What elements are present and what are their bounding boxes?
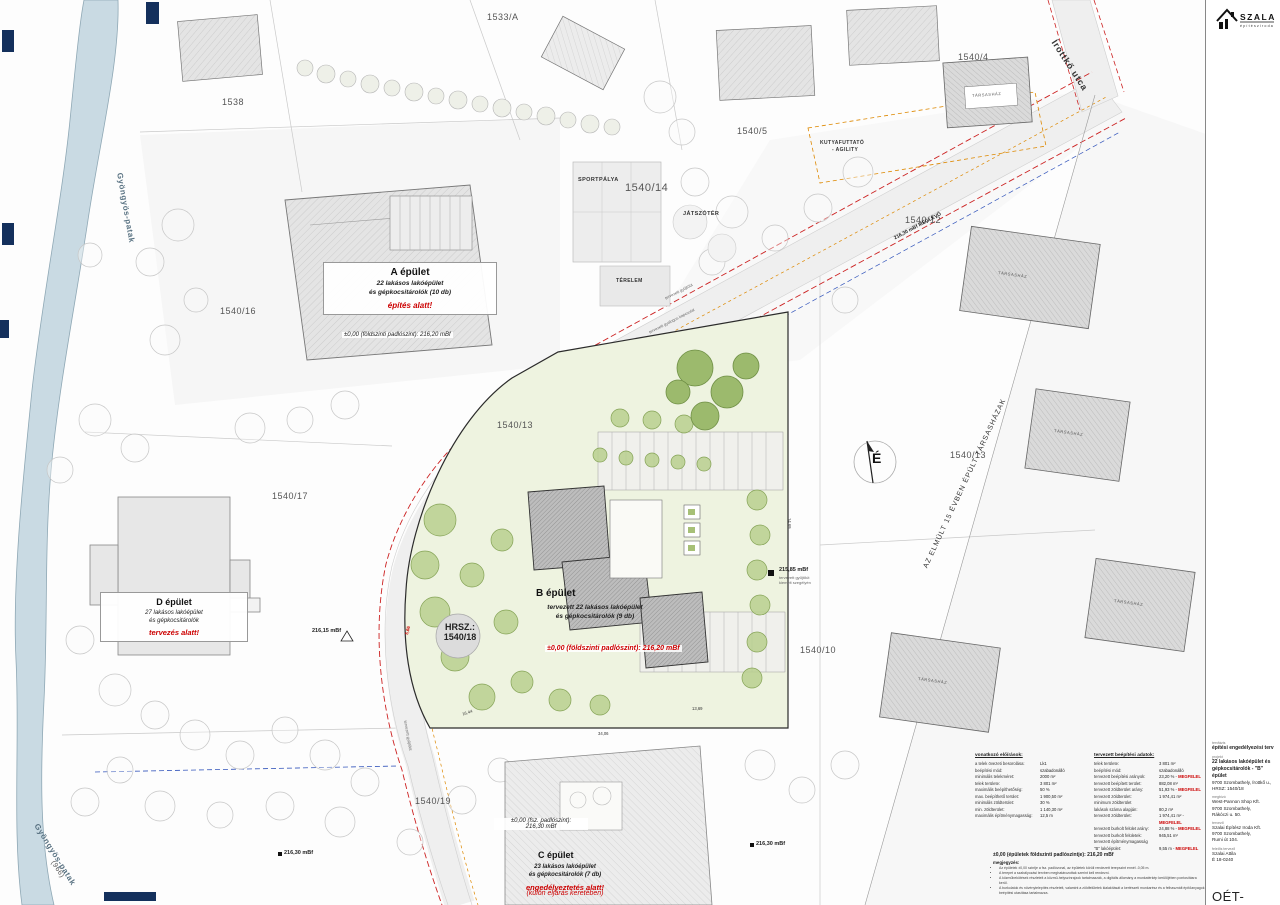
building-a-label: A épület 22 lakásos lakóépület és gépkoc…	[323, 262, 497, 315]
plot-label-1540-14: 1540/14	[625, 182, 668, 194]
svg-text:SZALAI: SZALAI	[1240, 12, 1276, 22]
dogrun-label-1: KUTYAFUTTATÓ	[820, 140, 864, 146]
plot-label-1533a: 1533/A	[487, 12, 519, 22]
ground-floor-level-note: ±0,00 (épületek földszinti padlószintje)…	[993, 852, 1205, 858]
elevation-21630-east: 216,30 mBf	[756, 841, 785, 847]
dim-34-06: 34,06	[598, 731, 608, 736]
zoning-required-column: vonatkozó előírások: a telek övezeti bes…	[975, 753, 1084, 852]
plot-label-1540-13-west: 1540/13	[497, 420, 533, 430]
sport-field-label: SPORTPÁLYA	[578, 177, 619, 183]
building-a-status: építés alatt!	[326, 301, 494, 310]
plot-label-1540-16: 1540/16	[220, 306, 256, 316]
plot-label-1538: 1538	[222, 97, 244, 107]
dim-13-69: 13,69	[692, 706, 702, 711]
hrsz-label: HRSZ.: 1540/18	[430, 622, 490, 642]
playground-label: JÁTSZÓTÉR	[683, 211, 719, 217]
building-c-title: C épület	[538, 850, 574, 860]
terelem-label: TÉRELEM	[616, 278, 643, 284]
plot-label-1540-10: 1540/10	[800, 645, 836, 655]
building-b-title: B épület	[536, 588, 575, 599]
elevation-21585: 215,85 mBf	[779, 567, 808, 573]
building-b-level: ±0,00 (földszinti padlószint): 216,20 mB…	[545, 645, 682, 652]
building-d-title: D épület	[103, 597, 245, 607]
building-d-status: tervezés alatt!	[103, 628, 245, 637]
plot-label-1540-5: 1540/5	[737, 126, 768, 136]
svg-text:építésziroda: építésziroda	[1240, 24, 1274, 28]
site-plan-sheet: 1533/A 1538 1540/4 1540/5 1540/12 1540/1…	[0, 0, 1280, 905]
plot-label-1540-19: 1540/19	[415, 796, 451, 806]
house-logo-icon: SZALAI építésziroda	[1214, 5, 1276, 39]
sheet-number: OÉT-04.04	[1212, 889, 1278, 905]
zoning-table: vonatkozó előírások: a telek övezeti bes…	[975, 753, 1203, 852]
firm-logo: SZALAI építésziroda	[1214, 5, 1276, 44]
building-c-level: ±0,00 (fsz. padlószint): 216,30 mBf	[494, 818, 588, 830]
elevation-21630-west: 216,30 mBf	[284, 850, 313, 856]
building-a-level: ±0,00 (földszinti padlószint): 216,20 mB…	[342, 332, 453, 338]
elevation-21615: 216,15 mBf	[312, 628, 341, 634]
zoning-planned-column: tervezett beépítési adatok: telek terüle…	[1094, 753, 1203, 852]
notes-block: ±0,00 (épületek földszinti padlószintje)…	[993, 852, 1205, 896]
dogrun-label-2: - AGILITY	[832, 147, 858, 153]
dim-14-69: 14,69	[787, 518, 792, 528]
building-d-label: D épület 27 lakásos lakóépület és gépkoc…	[100, 592, 248, 642]
building-a-title: A épület	[326, 267, 494, 278]
elevation-21585-sub2: kiemelt szegélyén	[779, 580, 811, 585]
title-block: SZALAI építésziroda tervfázis építési en…	[1205, 0, 1280, 905]
phase-value: építési engedélyezési terv	[1212, 745, 1278, 752]
title-block-body: tervfázis építési engedélyezési terv pro…	[1212, 738, 1278, 905]
north-letter: É	[872, 450, 881, 466]
plot-label-1540-4: 1540/4	[958, 52, 989, 62]
plot-label-1540-17: 1540/17	[272, 491, 308, 501]
